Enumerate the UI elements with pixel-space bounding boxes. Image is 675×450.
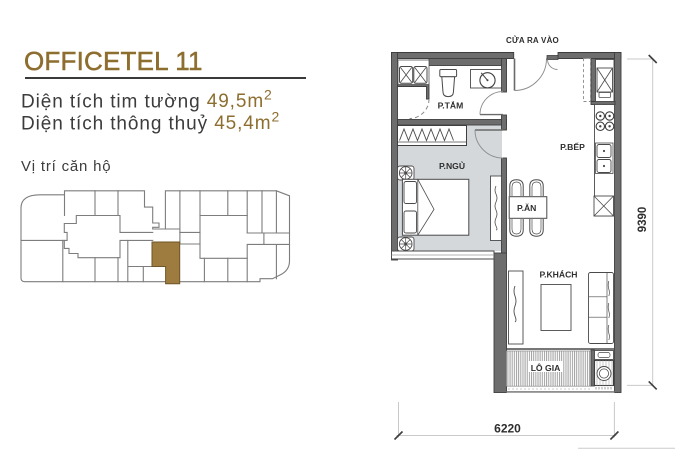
- svg-text:P.KHÁCH: P.KHÁCH: [539, 270, 577, 280]
- svg-text:P.TẮM: P.TẮM: [438, 101, 464, 111]
- svg-text:9390: 9390: [637, 207, 649, 233]
- svg-text:P.BẾP: P.BẾP: [560, 142, 585, 152]
- svg-text:P.NGỦ: P.NGỦ: [439, 160, 465, 171]
- svg-text:LÔ GIA: LÔ GIA: [531, 362, 561, 373]
- svg-text:CỬA RA VÀO: CỬA RA VÀO: [506, 36, 559, 45]
- svg-text:6220: 6220: [494, 422, 521, 436]
- svg-text:P.ĂN: P.ĂN: [517, 203, 536, 213]
